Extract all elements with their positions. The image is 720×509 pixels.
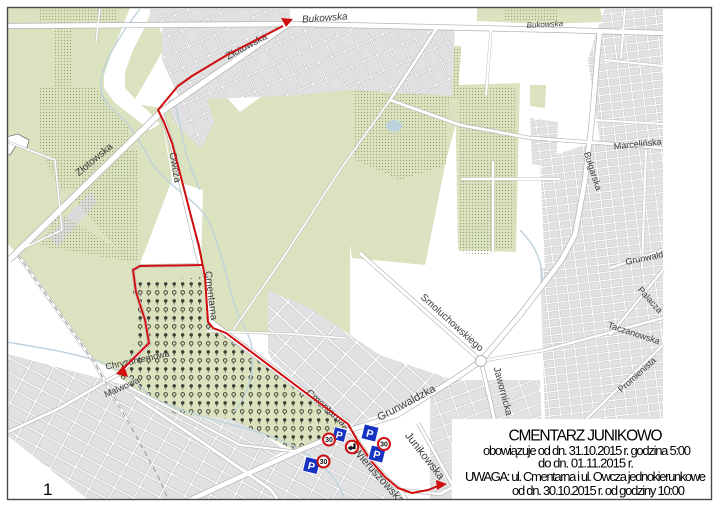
svg-text:1: 1 bbox=[43, 480, 52, 499]
svg-text:od dn. 30.10.2015 r. od godzin: od dn. 30.10.2015 r. od godziny 10:00 bbox=[512, 483, 685, 498]
svg-text:30: 30 bbox=[320, 459, 328, 466]
svg-text:30: 30 bbox=[325, 437, 333, 444]
svg-text:UWAGA: ul. Cmentarna i ul. Owc: UWAGA: ul. Cmentarna i ul. Owcza jednoki… bbox=[465, 469, 706, 484]
svg-text:CMENTARZ JUNIKOWO: CMENTARZ JUNIKOWO bbox=[509, 428, 663, 445]
svg-text:30: 30 bbox=[380, 442, 388, 449]
